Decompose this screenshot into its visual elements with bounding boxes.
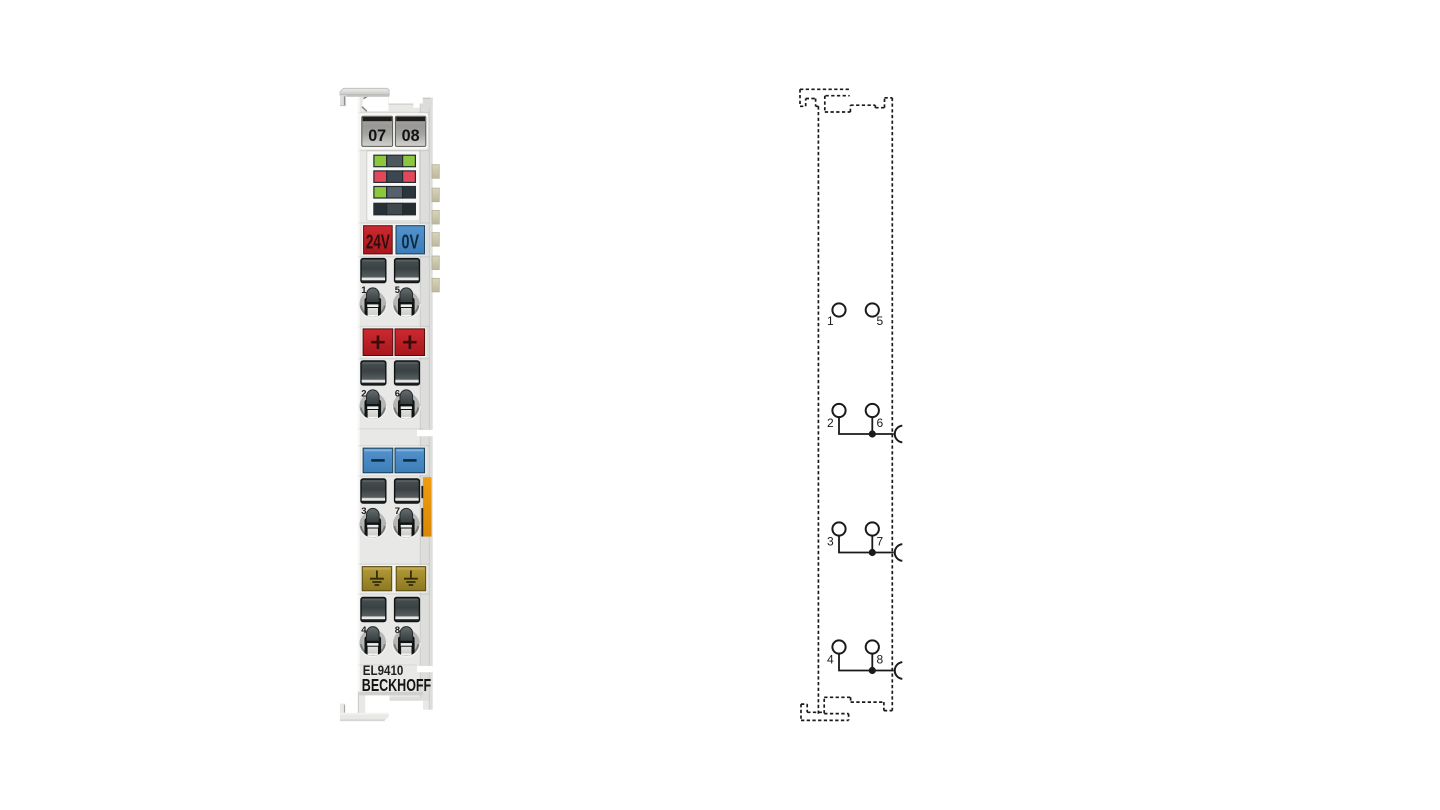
- svg-text:4: 4: [361, 625, 367, 636]
- svg-text:0V: 0V: [402, 230, 420, 253]
- svg-text:7: 7: [395, 506, 400, 517]
- svg-text:3: 3: [361, 506, 366, 517]
- svg-text:4: 4: [827, 652, 834, 666]
- svg-text:6: 6: [877, 416, 884, 430]
- svg-text:08: 08: [402, 126, 420, 145]
- svg-text:7: 7: [877, 534, 884, 548]
- svg-text:6: 6: [395, 389, 400, 400]
- svg-text:3: 3: [827, 534, 834, 548]
- svg-text:07: 07: [368, 126, 386, 145]
- svg-text:24V: 24V: [366, 229, 390, 253]
- svg-text:2: 2: [827, 416, 834, 430]
- svg-text:2: 2: [361, 389, 366, 400]
- svg-text:1: 1: [361, 285, 367, 296]
- svg-text:5: 5: [395, 285, 401, 296]
- svg-text:8: 8: [877, 652, 884, 666]
- svg-text:1: 1: [827, 314, 834, 328]
- svg-text:8: 8: [395, 625, 400, 636]
- svg-text:5: 5: [877, 314, 884, 328]
